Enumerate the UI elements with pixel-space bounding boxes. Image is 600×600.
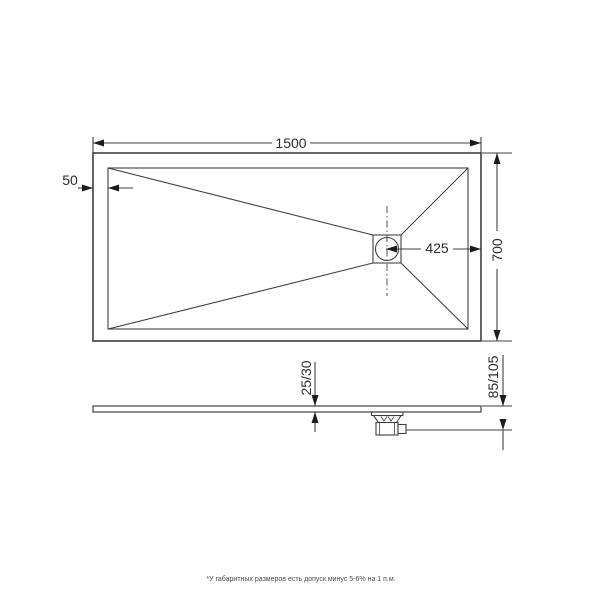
side-view-tray-profile (93, 406, 481, 412)
tolerance-footnote: *У габаритных размеров есть допуск минус… (206, 575, 395, 583)
slope-line-bottom-left (108, 263, 373, 329)
trap-outlet-collar (398, 425, 406, 434)
dim-label-overall-height: 85/105 (485, 355, 501, 398)
slope-line-top-right (401, 168, 468, 235)
dim-label-rim-thickness: 25/30 (298, 360, 314, 395)
dimension-arrowheads (82, 140, 507, 431)
arrow-700-top (494, 153, 501, 164)
slope-line-bottom-right (401, 263, 468, 329)
trap-body (374, 416, 402, 423)
dim-label-length: 1500 (275, 135, 306, 151)
arrow-1500-left (93, 140, 104, 147)
dim-label-width: 700 (489, 238, 505, 262)
shower-tray-technical-drawing: 1500 50 700 425 25/30 85/105 *У габаритн… (0, 0, 600, 600)
dim-label-drain-to-edge: 425 (425, 240, 449, 256)
arrow-50-inner (108, 185, 119, 192)
arrow-50-outer (82, 185, 93, 192)
arrow-425-left (386, 246, 397, 253)
arrow-1500-right (470, 140, 481, 147)
trap-clamp-right (388, 417, 394, 422)
arrow-425-right (470, 246, 481, 253)
slope-line-top-left (108, 168, 373, 235)
trap-clamp-left (381, 417, 387, 422)
drawing-sheet: 1500 50 700 425 25/30 85/105 *У габаритн… (0, 0, 600, 600)
dimension-labels: 1500 50 700 425 25/30 85/105 *У габаритн… (62, 135, 505, 583)
arrow-2530-top (312, 395, 319, 406)
arrow-700-bottom (494, 330, 501, 341)
dim-label-rim-offset: 50 (62, 172, 78, 188)
linework (78, 137, 512, 450)
top-view-outer-edge (93, 153, 481, 341)
arrow-85105-bottom (500, 419, 507, 430)
arrow-2530-bottom (312, 412, 319, 423)
